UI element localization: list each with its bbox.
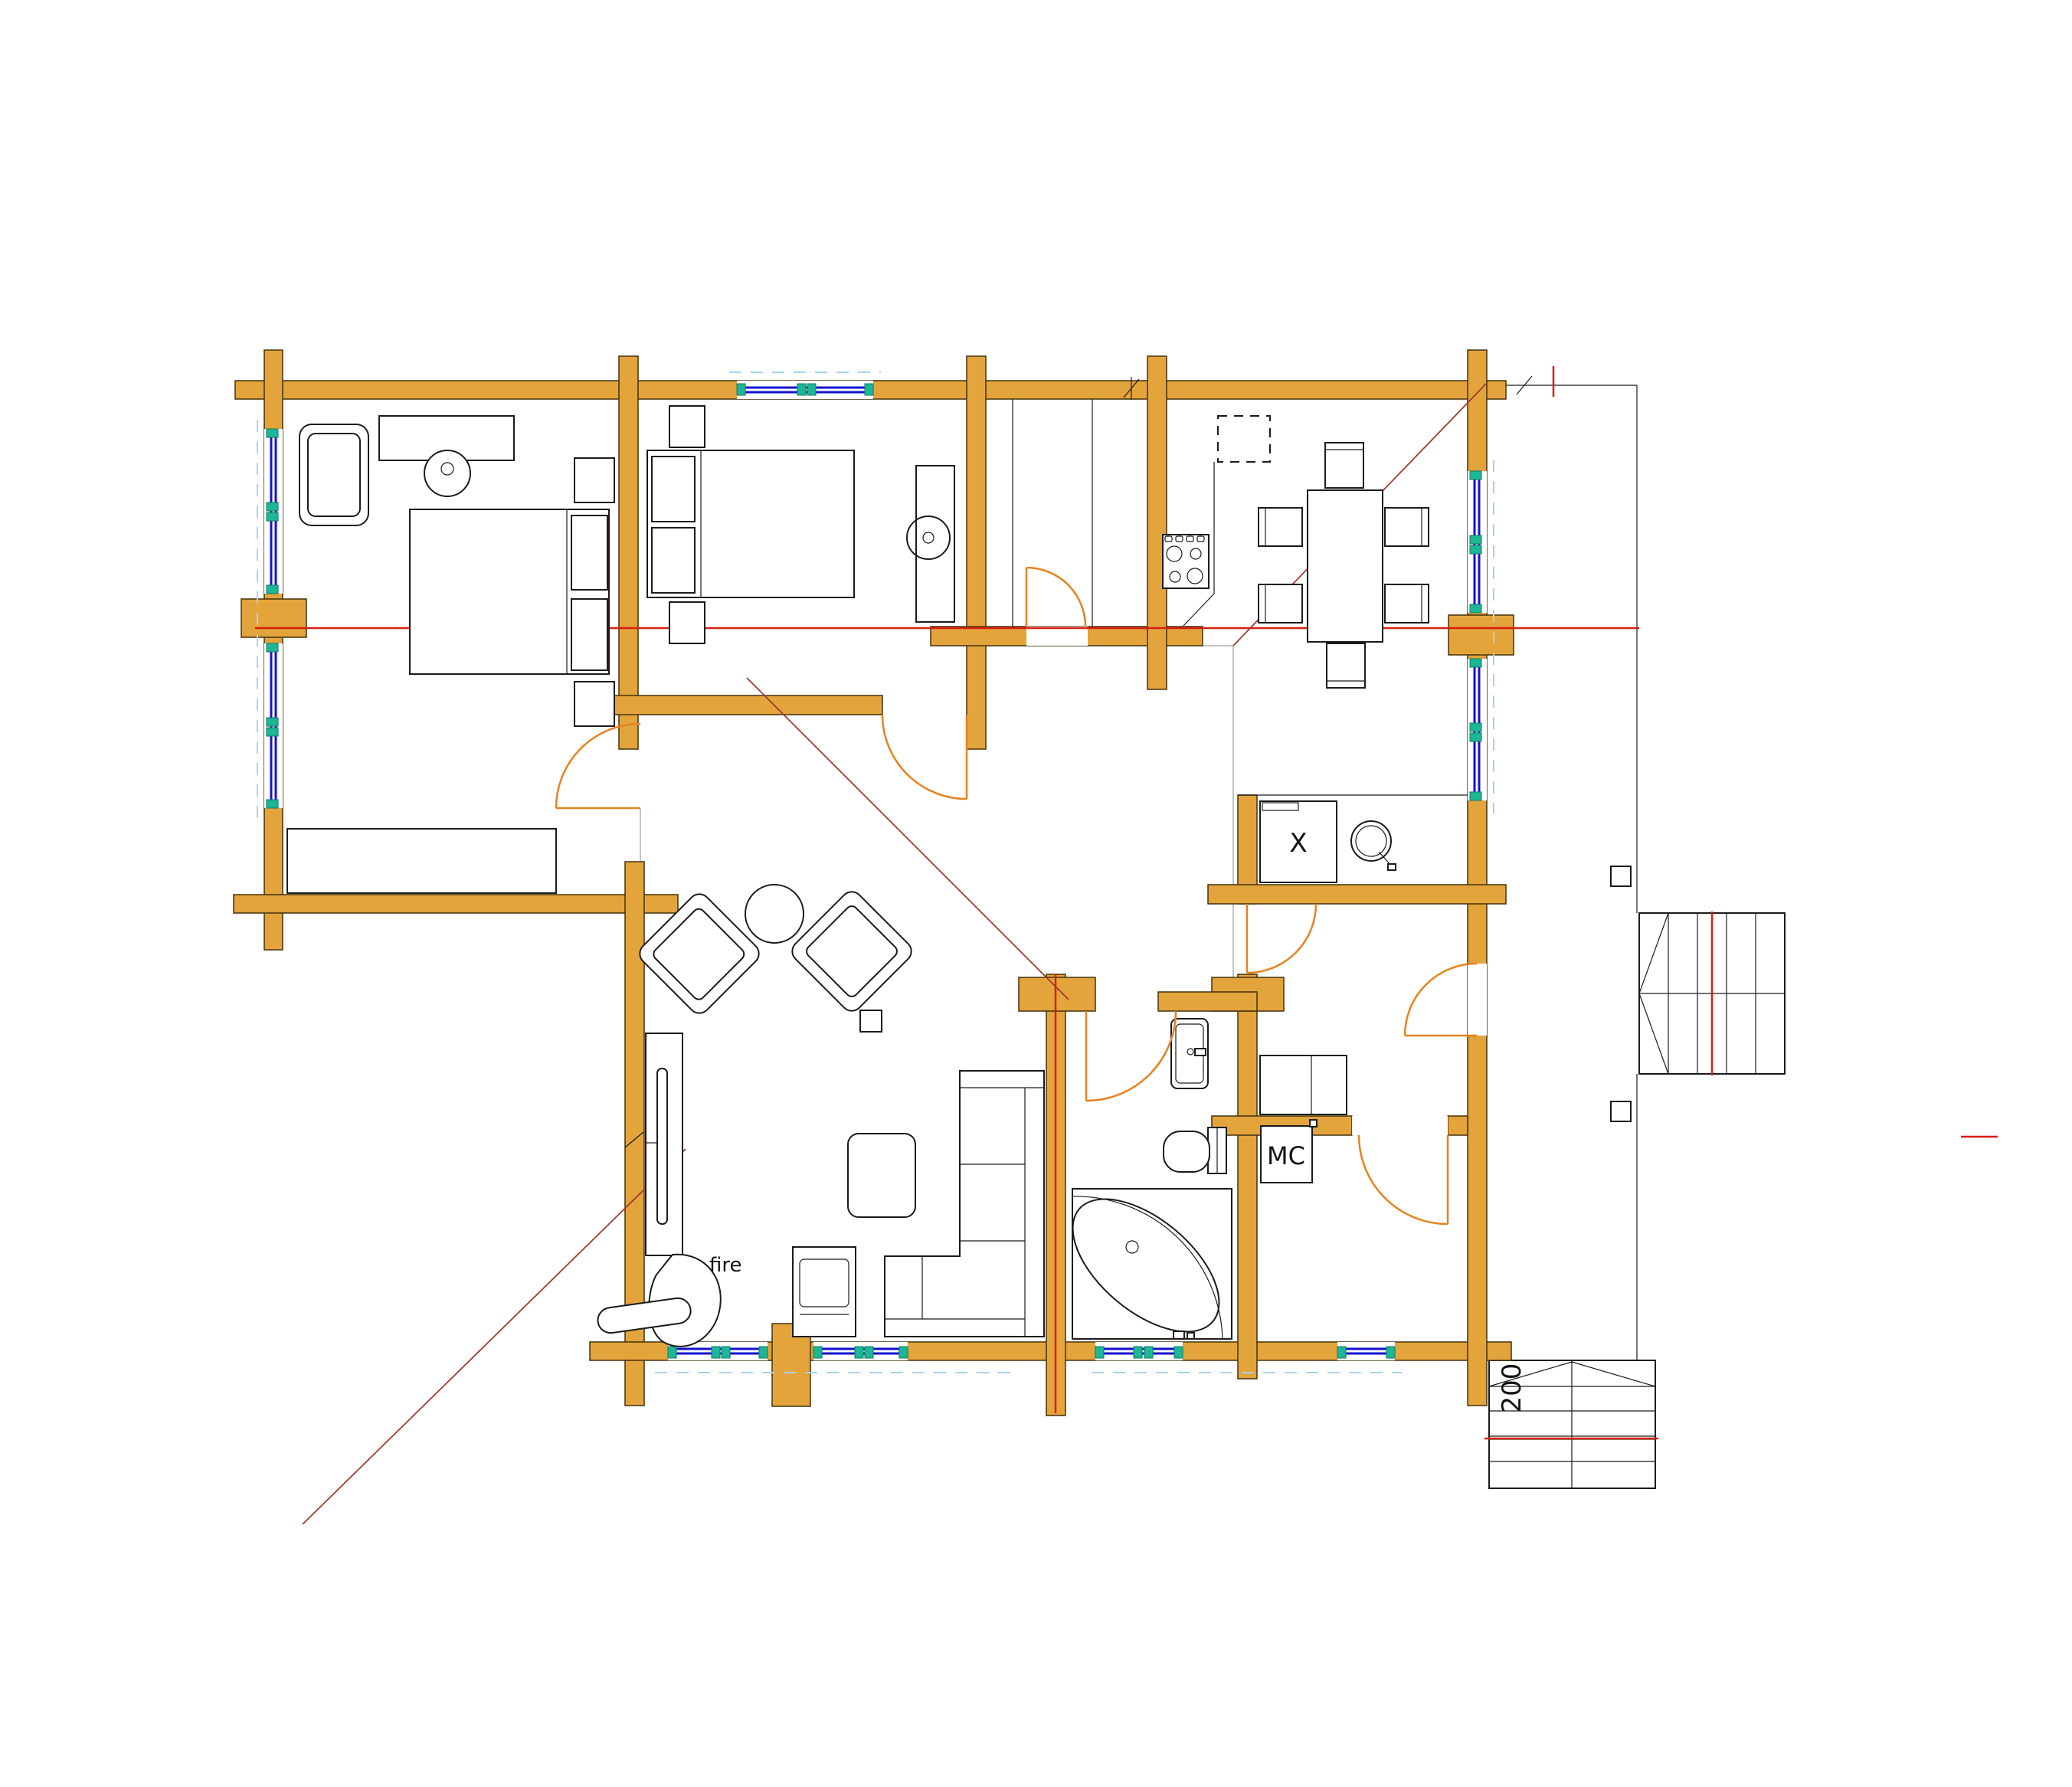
wall-bottom-left: [234, 895, 678, 913]
nightstand: [574, 682, 614, 726]
door-gap-mc: [1352, 1116, 1448, 1135]
bed2-pillow: [652, 528, 695, 593]
window-cap: [668, 1347, 676, 1358]
nightstand: [669, 406, 705, 447]
window-cap: [1470, 471, 1481, 479]
window-cap: [1470, 792, 1481, 800]
door-arc-closet: [1026, 568, 1085, 627]
nightstand: [669, 602, 705, 643]
toilet-bowl: [1164, 1131, 1209, 1172]
door-arc-mc-room: [1359, 1135, 1448, 1224]
deck-post: [1611, 866, 1631, 886]
tv-screen: [657, 1069, 667, 1224]
lounge-armchair-seat: [804, 904, 899, 999]
window-cap: [797, 384, 806, 395]
wall-cross-right: [1448, 615, 1514, 655]
label-washing-machine: X: [1289, 828, 1307, 859]
label-fireplace: fire: [709, 1254, 742, 1277]
window-cap: [855, 1347, 863, 1358]
window-cap: [1144, 1347, 1153, 1358]
window-cap: [899, 1347, 908, 1358]
window-cap: [267, 512, 278, 521]
window-cap: [1470, 733, 1481, 741]
wall-bedroom-divider: [619, 356, 638, 749]
nightstand: [574, 458, 614, 502]
coffee-table: [848, 1134, 915, 1217]
vestibule-cabinet: [1260, 1056, 1347, 1114]
wall-bath-east: [1238, 974, 1257, 1379]
wall-kitchen-west: [1147, 356, 1167, 689]
mc-unit-connector: [1310, 1120, 1317, 1127]
dining-table: [1308, 490, 1383, 642]
window-cap: [1174, 1347, 1183, 1358]
window-cap: [267, 728, 278, 736]
window-cap: [865, 384, 873, 395]
door-arc-corridor: [1247, 904, 1316, 973]
window-cap: [737, 384, 745, 395]
desk-stool: [424, 450, 470, 496]
lounge-armchair-seat: [651, 906, 746, 1001]
door-gap-entry: [1468, 964, 1487, 1036]
floorplan-svg: fireXMC200: [0, 0, 2072, 1787]
door-arc-entry: [1405, 964, 1477, 1036]
window-cap: [1386, 1347, 1395, 1358]
door-gap-closet: [1026, 627, 1088, 646]
window-cap: [712, 1347, 720, 1358]
window-cap: [865, 1347, 873, 1358]
utility-sink: [1351, 821, 1391, 861]
round-side-table: [745, 885, 804, 943]
deck-post: [1611, 1101, 1631, 1121]
window-cap: [267, 502, 278, 511]
floorplan-page: fireXMC200: [0, 0, 2072, 1787]
stairs-east-arrow: [1639, 913, 1668, 993]
bed1-pillow: [571, 599, 607, 670]
bed2-pillow: [652, 457, 695, 522]
bed1-pillow: [571, 515, 607, 590]
window-cap: [267, 585, 278, 594]
window-cap: [1470, 723, 1481, 731]
bench-bedroom1: [287, 829, 556, 893]
bathtub-deck: [1072, 1189, 1232, 1339]
wall-bath-north: [1158, 992, 1257, 1011]
window-cap: [1337, 1347, 1346, 1358]
utility-faucet-head: [1388, 864, 1396, 870]
wall-mc-north-b: [1448, 1116, 1468, 1135]
window-cap: [1470, 545, 1481, 554]
bathtub-faucet: [1187, 1333, 1194, 1339]
window-cap: [1095, 1347, 1104, 1358]
window-cap: [813, 1347, 822, 1358]
window-cap: [807, 384, 816, 395]
window-cap: [267, 800, 278, 808]
bathtub-faucet: [1173, 1331, 1184, 1339]
armchair-bedroom1-seat: [308, 434, 360, 516]
window-cap: [722, 1347, 730, 1358]
label-mc-unit: MC: [1267, 1141, 1305, 1170]
tv-armchair: [793, 1247, 856, 1337]
window-cap: [267, 643, 278, 652]
label-stair-mark: 200: [1497, 1363, 1527, 1413]
window-cap: [1470, 604, 1481, 613]
wall-bath-west-arm: [1019, 977, 1095, 1011]
stairs-east-arrow: [1639, 993, 1668, 1074]
fridge-dashed: [1218, 416, 1270, 462]
window-cap: [1470, 535, 1481, 544]
window-cap: [1470, 659, 1481, 667]
window-cap: [759, 1347, 768, 1358]
window-cap: [267, 718, 278, 726]
wall-utility-south: [1208, 885, 1506, 904]
window-cap: [267, 429, 278, 437]
door-arc-bathroom: [1086, 1011, 1176, 1101]
window-cap: [1134, 1347, 1142, 1358]
wall-cross-left: [241, 599, 306, 637]
bath-sink-faucet: [1195, 1049, 1206, 1056]
small-square-table: [860, 1010, 882, 1032]
door-arc-bedroom2: [882, 715, 967, 799]
wall-closet-west: [967, 356, 986, 749]
wall-bedroom2-south: [591, 695, 882, 715]
stairs-south-arrow: [1572, 1362, 1655, 1386]
